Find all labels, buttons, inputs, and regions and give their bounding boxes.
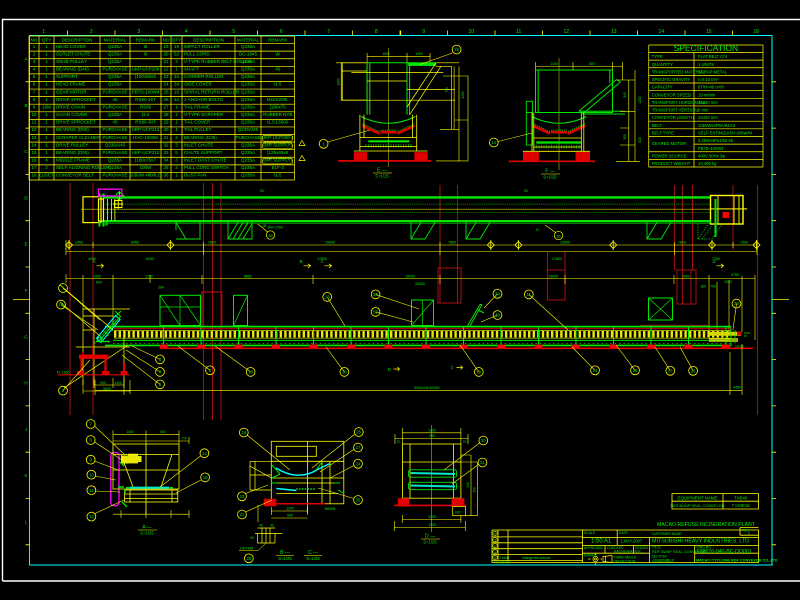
svg-text:750: 750 [445, 87, 449, 93]
svg-text:3: 3 [137, 29, 140, 35]
svg-text:5000x18=90000: 5000x18=90000 [414, 386, 439, 390]
svg-text:22: 22 [163, 67, 169, 72]
svg-text:PRODUCT WEIGHT: PRODUCT WEIGHT [652, 161, 691, 166]
svg-text:SCRAPER CLEANER: SCRAPER CLEANER [56, 135, 101, 140]
svg-text:0 mm: 0 mm [698, 108, 709, 113]
svg-text:MB008: MB008 [325, 507, 336, 511]
svg-text:1: 1 [42, 29, 45, 35]
svg-text:1450: 1450 [75, 241, 83, 245]
svg-text:4450: 4450 [733, 385, 741, 389]
svg-text:26: 26 [163, 97, 169, 102]
svg-text:TAIL PULLEY: TAIL PULLEY [184, 127, 212, 132]
svg-text:17: 17 [31, 165, 37, 170]
svg-text:HVC-1000M: HVC-1000M [133, 135, 158, 140]
svg-text:100W: 100W [140, 165, 153, 170]
svg-text:SCRAP METAL: SCRAP METAL [698, 69, 728, 74]
svg-text:5: 5 [232, 29, 235, 35]
svg-text:PURCHASE: PURCHASE [235, 135, 260, 140]
svg-text:18: 18 [476, 370, 481, 375]
svg-text:F: F [25, 288, 28, 293]
svg-text:UKP-UCP210: UKP-UCP210 [132, 127, 160, 132]
svg-text:BW-1050: BW-1050 [268, 226, 283, 230]
svg-text:PURCHASE: PURCHASE [102, 135, 127, 140]
svg-text:24: 24 [356, 461, 361, 466]
svg-text:700: 700 [710, 284, 716, 288]
svg-text:36: 36 [268, 233, 273, 238]
svg-text:23: 23 [163, 74, 169, 79]
svg-text:DRIVE CHAIN: DRIVE CHAIN [56, 104, 85, 109]
svg-text:25: 25 [163, 89, 169, 94]
svg-text:8450: 8450 [131, 241, 139, 245]
svg-text:1400: 1400 [126, 430, 134, 434]
svg-text:14: 14 [658, 29, 664, 35]
svg-text:13: 13 [31, 135, 37, 140]
svg-text:DRIVE SPROCKET: DRIVE SPROCKET [56, 97, 96, 102]
svg-text:10: 10 [468, 29, 474, 35]
svg-text:10M: 10M [42, 104, 51, 109]
svg-text:10: 10 [248, 370, 253, 375]
svg-text:1200: 1200 [286, 507, 294, 511]
svg-text:19: 19 [203, 475, 208, 480]
svg-text:7800: 7800 [448, 241, 456, 245]
svg-text:284: 284 [158, 286, 164, 290]
svg-text:OUTLET CHUTE: OUTLET CHUTE [56, 51, 90, 56]
svg-text:RES BUNP SEAL CONVEYOR: RES BUNP SEAL CONVEYOR [670, 503, 724, 508]
svg-text:PULL CORD: PULL CORD [184, 51, 210, 56]
svg-text:QUANTITY: QUANTITY [652, 62, 673, 67]
svg-text:13: 13 [325, 295, 330, 300]
svg-text:CONVEYOR SPEED: CONVEYOR SPEED [652, 92, 691, 97]
svg-text:1400: 1400 [415, 52, 423, 56]
svg-text:TAB40: TAB40 [734, 495, 748, 500]
svg-text:Q235A: Q235A [241, 142, 255, 147]
svg-text:3200: 3200 [337, 78, 341, 85]
svg-text:Q235A: Q235A [241, 104, 255, 109]
svg-text:10: 10 [31, 112, 37, 117]
svg-text:13: 13 [59, 302, 64, 307]
svg-text:ELF-3: ELF-3 [272, 165, 285, 170]
svg-text:Q235A/45: Q235A/45 [105, 142, 126, 147]
svg-text:7 HOE16: 7 HOE16 [732, 503, 751, 508]
svg-text:Q235A: Q235A [241, 150, 255, 155]
svg-text:90: 90 [250, 536, 254, 540]
svg-text:PURCHASE: PURCHASE [102, 104, 127, 109]
svg-text:27: 27 [668, 368, 673, 373]
svg-text:t1.5: t1.5 [274, 173, 282, 178]
svg-text:MATERIAL: MATERIAL [104, 37, 127, 42]
svg-text:BEARING (D50): BEARING (D50) [56, 127, 89, 132]
svg-text:TAIL FRAME: TAIL FRAME [184, 104, 210, 109]
svg-text:S=1/15: S=1/15 [375, 174, 389, 179]
svg-text:Q235A: Q235A [108, 165, 122, 170]
svg-text:5000: 5000 [682, 274, 690, 278]
svg-text:[180x75x7: [180x75x7 [135, 158, 156, 163]
svg-text:BEARING (D50): BEARING (D50) [56, 150, 89, 155]
svg-text:150: 150 [473, 487, 477, 493]
svg-text:7800: 7800 [208, 241, 216, 245]
svg-text:11: 11 [516, 29, 521, 35]
svg-text:K: K [24, 473, 27, 478]
svg-text:SELF-ALIGNING ROLLER: SELF-ALIGNING ROLLER [56, 165, 110, 170]
svg-text:PURCHASE: PURCHASE [102, 67, 127, 72]
svg-text:16: 16 [241, 430, 246, 435]
svg-text:Q235A: Q235A [241, 74, 255, 79]
svg-text:Q235A: Q235A [241, 67, 255, 72]
svg-text:BELT: BELT [652, 123, 663, 128]
svg-text:PURCHASE: PURCHASE [102, 173, 127, 178]
svg-text:(1)SET: (1)SET [39, 173, 54, 178]
svg-text:1 UNITS: 1 UNITS [698, 62, 714, 67]
svg-text:020: 020 [455, 510, 461, 514]
svg-text:45: 45 [112, 120, 118, 125]
svg-text:19: 19 [174, 44, 180, 49]
svg-text:35: 35 [163, 165, 169, 170]
svg-text:UKP-UCP210: UKP-UCP210 [132, 150, 160, 155]
svg-text:15000: 15000 [325, 241, 335, 245]
svg-text:33: 33 [495, 313, 500, 318]
svg-text:B: B [24, 103, 27, 108]
svg-text:31: 31 [480, 460, 485, 465]
svg-text:11: 11 [32, 120, 37, 125]
svg-text:Q235A: Q235A [108, 82, 122, 87]
svg-text:S=1/25: S=1/25 [278, 556, 292, 561]
svg-text:25: 25 [454, 47, 459, 52]
svg-text:J-ANCHOR BOLTS: J-ANCHOR BOLTS [184, 97, 223, 102]
svg-text:20: 20 [163, 51, 169, 56]
svg-text:GEARED MOTOR: GEARED MOTOR [652, 141, 686, 146]
svg-text:940: 940 [100, 381, 106, 385]
svg-text:t5: t5 [144, 44, 148, 49]
svg-text:13: 13 [89, 514, 94, 519]
svg-text:H: H [24, 381, 27, 386]
svg-text:BEARING (D35): BEARING (D35) [184, 135, 217, 140]
svg-text:13: 13 [611, 29, 617, 35]
svg-text:1400: 1400 [428, 523, 436, 527]
svg-text:Q235A: Q235A [108, 112, 122, 117]
svg-text:CAPACITY: CAPACITY [652, 85, 673, 90]
svg-text:t1.5 L5000: t1.5 L5000 [267, 120, 289, 125]
svg-text:27: 27 [163, 104, 169, 109]
svg-text:34: 34 [174, 74, 180, 79]
svg-text:+: + [553, 561, 555, 565]
svg-text:S=1/25: S=1/25 [423, 540, 437, 545]
svg-text:r=0.15 t/m³: r=0.15 t/m³ [698, 77, 719, 82]
svg-text:SUPPORT: SUPPORT [56, 74, 78, 79]
svg-text:[100x50x5: [100x50x5 [135, 74, 156, 79]
svg-text:35: 35 [356, 498, 361, 503]
svg-text:change the colours: change the colours [522, 556, 551, 560]
svg-text:15: 15 [31, 150, 37, 155]
svg-text:SPECIFICATION: SPECIFICATION [674, 43, 739, 53]
svg-text:34: 34 [163, 158, 169, 163]
svg-text:45: 45 [275, 67, 281, 72]
svg-text:CARRIER ROLLER: CARRIER ROLLER [184, 74, 224, 79]
svg-text:2.2kWx4Px1/62.55: 2.2kWx4Px1/62.55 [698, 138, 734, 143]
svg-text:RS80-15T: RS80-15T [135, 97, 156, 102]
svg-text:PURCHASE: PURCHASE [102, 127, 127, 132]
svg-text:A: A [24, 56, 27, 61]
svg-text:DUST PAN: DUST PAN [184, 173, 206, 178]
svg-text:REMARK: REMARK [136, 37, 155, 42]
svg-text:29: 29 [163, 120, 169, 125]
svg-text:34050: 34050 [415, 282, 425, 286]
svg-text:11: 11 [527, 292, 532, 297]
svg-text:4: 4 [185, 29, 188, 35]
svg-text:6: 6 [280, 29, 283, 35]
svg-text:INLET CHUTE: INLET CHUTE [184, 142, 213, 147]
svg-text:REV.DATE: REV.DATE [494, 560, 511, 564]
svg-text:QTY: QTY [42, 37, 51, 42]
svg-text:1050: 1050 [428, 428, 436, 432]
svg-text:36: 36 [163, 173, 169, 178]
svg-text:Q235A: Q235A [241, 173, 255, 178]
svg-text:PURCHASE: PURCHASE [102, 150, 127, 155]
svg-text:IMPACT ROLLER: IMPACT ROLLER [184, 44, 221, 49]
svg-text:30: 30 [481, 438, 486, 443]
svg-text:29: 29 [734, 301, 739, 306]
svg-text:600: 600 [160, 430, 166, 434]
svg-text:34: 34 [495, 291, 500, 296]
svg-text:EQUIPMENT NAME: EQUIPMENT NAME [678, 495, 718, 500]
svg-text:1450: 1450 [93, 274, 101, 278]
svg-text:31: 31 [163, 135, 169, 140]
svg-text:16: 16 [31, 158, 37, 163]
svg-text:J: J [25, 427, 27, 432]
svg-text:QTY: QTY [172, 37, 181, 42]
svg-text:F98626-040-BC-DO001: F98626-040-BC-DO001 [697, 549, 752, 555]
svg-text:NO: NO [31, 37, 38, 42]
svg-text:1B: 1B [262, 224, 267, 228]
svg-text:SPIRAL RETURN ROLLER: SPIRAL RETURN ROLLER [184, 89, 240, 94]
svg-text:1050: 1050 [382, 52, 390, 56]
svg-text:7800: 7800 [678, 241, 686, 245]
svg-text:5V: 5V [260, 189, 265, 193]
svg-text:PULL CORD SWITCH: PULL CORD SWITCH [184, 165, 229, 170]
svg-text:7: 7 [327, 29, 330, 35]
svg-text:DRIVE SPROCKET: DRIVE SPROCKET [56, 120, 96, 125]
svg-text:SIDE COVER: SIDE COVER [184, 82, 213, 87]
svg-text:BELT TYPE: BELT TYPE [652, 130, 674, 135]
svg-text:t3.2: t3.2 [142, 112, 150, 117]
svg-text:9: 9 [422, 29, 425, 35]
svg-text:14: 14 [202, 451, 207, 456]
svg-text:PBTD-100W4: PBTD-100W4 [132, 89, 160, 94]
svg-text:Q235A: Q235A [241, 112, 255, 117]
svg-text:Q235A: Q235A [241, 97, 255, 102]
svg-text:34: 34 [174, 97, 180, 102]
svg-text:Q235A: Q235A [241, 89, 255, 94]
svg-text:770: 770 [181, 437, 187, 441]
svg-text:S=1/25: S=1/25 [543, 175, 557, 180]
svg-text:PROJECTION: PROJECTION [614, 559, 636, 563]
svg-text:1050Wx2P9A/923.0: 1050Wx2P9A/923.0 [698, 123, 736, 128]
svg-text:540: 540 [287, 514, 293, 518]
svg-text:12: 12 [31, 127, 37, 132]
svg-text:180: 180 [700, 284, 706, 288]
svg-text:11: 11 [89, 488, 94, 493]
svg-text:TRANSPORT VERTICAL: TRANSPORT VERTICAL [652, 108, 700, 113]
svg-text:1050: 1050 [724, 280, 732, 284]
svg-text:MACAO CYCLONE RDF CONVEYOR CO.: MACAO CYCLONE RDF CONVEYOR CO.,LTD [696, 559, 778, 563]
svg-text:N: N [536, 228, 539, 232]
svg-text:19: 19 [163, 44, 169, 49]
svg-text:S=1/25: S=1/25 [140, 531, 154, 536]
svg-text:1050W 4800LG: 1050W 4800LG [130, 173, 162, 178]
svg-text:SHAFT: SHAFT [184, 67, 199, 72]
svg-text:14: 14 [593, 368, 598, 373]
svg-text:30: 30 [163, 127, 169, 132]
svg-text:17800: 17800 [552, 257, 562, 261]
svg-text:RUBBER NYB: RUBBER NYB [263, 112, 292, 117]
svg-text:M16X200L: M16X200L [267, 97, 289, 102]
svg-text:DESCRIPTION: DESCRIPTION [193, 37, 224, 42]
svg-text:70: 70 [397, 440, 401, 444]
svg-text:t6: t6 [144, 51, 148, 56]
svg-text:800: 800 [96, 281, 102, 285]
svg-text:APPROVED: APPROVED [584, 546, 603, 550]
svg-text:CONVEYOR LENGTH: CONVEYOR LENGTH [652, 115, 694, 120]
svg-text:S=1/25: S=1/25 [306, 556, 320, 561]
svg-text:16: 16 [753, 29, 759, 35]
svg-text:SELF EXTINGUISH 400W/M: SELF EXTINGUISH 400W/M [698, 130, 752, 135]
svg-text:PB7D-100W4: PB7D-100W4 [698, 146, 724, 151]
svg-text:400V 50Hz 3φ: 400V 50Hz 3φ [698, 153, 725, 158]
svg-text:26: 26 [691, 368, 696, 373]
svg-text:350: 350 [623, 134, 627, 140]
svg-text:DRIVE PULLEY: DRIVE PULLEY [56, 142, 88, 147]
svg-text:SPECIFIC GRAVITY: SPECIFIC GRAVITY [652, 77, 691, 82]
svg-text:8882: 8882 [244, 274, 252, 278]
svg-text:10: 10 [89, 472, 94, 477]
svg-text:Q235A: Q235A [241, 165, 255, 170]
svg-text:28: 28 [246, 556, 251, 561]
svg-text:23: 23 [240, 494, 245, 499]
svg-text:15: 15 [706, 29, 712, 35]
svg-text:FLAT BELT C/V: FLAT BELT C/V [698, 54, 727, 59]
svg-text:5V: 5V [524, 189, 529, 193]
svg-text:Q235A: Q235A [108, 158, 122, 163]
svg-text:DATE: DATE [619, 531, 629, 535]
svg-text:32: 32 [163, 142, 169, 147]
svg-text:18: 18 [31, 173, 37, 178]
svg-text:REMARK: REMARK [268, 37, 287, 42]
svg-text:15000: 15000 [548, 274, 558, 278]
svg-text:Q235A: Q235A [241, 44, 255, 49]
svg-text:27: 27 [356, 445, 361, 450]
svg-text:7350: 7350 [740, 241, 748, 245]
svg-text:RS80-30T: RS80-30T [135, 120, 156, 125]
svg-text:HEAD FRAME: HEAD FRAME [56, 82, 86, 87]
svg-text:Q235A/45: Q235A/45 [238, 127, 259, 132]
svg-text:NO: NO [163, 37, 170, 42]
svg-text:930: 930 [429, 434, 435, 438]
svg-text:ASSEMBLY: ASSEMBLY [652, 558, 674, 563]
svg-text:53: 53 [373, 310, 378, 315]
svg-text:RS80: RS80 [140, 104, 152, 109]
svg-text:POWER SOURCE: POWER SOURCE [652, 153, 687, 158]
svg-text:40: 40 [270, 524, 274, 528]
svg-text:MATERIAL: MATERIAL [237, 37, 260, 42]
svg-text:620: 620 [638, 137, 642, 143]
svg-text:45: 45 [112, 97, 118, 102]
svg-text:36: 36 [556, 233, 561, 238]
svg-text:Q235A: Q235A [241, 158, 255, 163]
svg-text:E: E [388, 367, 391, 372]
svg-text:4780: 4780 [731, 273, 739, 277]
svg-text:TAIL COVER: TAIL COVER [184, 120, 211, 125]
svg-text:1050: 1050 [428, 515, 436, 519]
svg-text:t1.5: t1.5 [274, 82, 282, 87]
svg-text:340: 340 [623, 92, 627, 98]
svg-text:DESCRIPTION: DESCRIPTION [62, 37, 93, 42]
svg-text:1.MAY.2007: 1.MAY.2007 [620, 539, 643, 544]
svg-text:25: 25 [356, 430, 361, 435]
svg-text:Q235A: Q235A [108, 44, 122, 49]
svg-text:800: 800 [589, 62, 595, 66]
svg-text:B: B [300, 259, 303, 264]
svg-text:32400 mm: 32400 mm [698, 100, 718, 105]
svg-text:E: E [24, 242, 27, 247]
svg-text:52: 52 [174, 51, 180, 56]
svg-text:16: 16 [174, 89, 180, 94]
svg-text:10 m/min: 10 m/min [698, 92, 716, 97]
svg-text:HEAD COVER: HEAD COVER [56, 44, 87, 49]
svg-text:SNUB PULLEY: SNUB PULLEY [56, 59, 87, 64]
svg-text:Q235A: Q235A [108, 74, 122, 79]
svg-text:BEARING (D40): BEARING (D40) [56, 67, 89, 72]
svg-text:16: 16 [342, 370, 347, 375]
svg-text:CHAIN COVER: CHAIN COVER [56, 112, 88, 117]
svg-text:1200: 1200 [638, 96, 642, 103]
svg-text:[125x65x6: [125x65x6 [267, 150, 288, 155]
svg-text:MITSUBISHI HEAVY INDUSTRIES,: MITSUBISHI HEAVY INDUSTRIES, LTD. [652, 539, 751, 545]
svg-text:Q235A: Q235A [241, 82, 255, 87]
svg-text:40: 40 [259, 524, 263, 528]
svg-text:15000: 15000 [405, 274, 415, 278]
svg-text:GEAR MOTOR: GEAR MOTOR [56, 89, 87, 94]
svg-text:14: 14 [491, 140, 496, 145]
svg-text:G: G [24, 334, 28, 339]
svg-text:FL-1500: FL-1500 [57, 370, 69, 374]
svg-text:1782: 1782 [145, 274, 153, 278]
svg-text:38: 38 [633, 368, 638, 373]
svg-text:6T/H=40 m³/H: 6T/H=40 m³/H [698, 85, 724, 90]
svg-text:1:50 A1: 1:50 A1 [591, 539, 612, 545]
svg-text:UKP-UCP208: UKP-UCP208 [132, 67, 160, 72]
svg-text:TYPE: TYPE [652, 54, 663, 59]
svg-text:Q235A: Q235A [108, 59, 122, 64]
svg-text:[180x75: [180x75 [270, 104, 287, 109]
svg-text:CUSTOMER NAME: CUSTOMER NAME [652, 532, 683, 536]
svg-text:F: F [451, 366, 454, 371]
svg-text:MIDDLE FRAME: MIDDLE FRAME [56, 158, 90, 163]
svg-text:8: 8 [375, 29, 378, 35]
svg-text:34: 34 [174, 82, 180, 87]
svg-text:28: 28 [163, 112, 169, 117]
svg-text:Q235A: Q235A [108, 51, 122, 56]
svg-text:2: 2 [90, 29, 93, 35]
svg-text:21: 21 [163, 59, 169, 64]
svg-text:DC-1845: DC-1845 [239, 51, 258, 56]
svg-text:V-TYPE SCRAPER: V-TYPE SCRAPER [184, 112, 224, 117]
svg-text:18.63: 18.63 [735, 344, 744, 348]
svg-text:24: 24 [163, 82, 169, 87]
svg-text:PURCHASE: PURCHASE [102, 89, 127, 94]
svg-text:CONVEYOR BELT: CONVEYOR BELT [56, 173, 94, 178]
svg-text:1200: 1200 [461, 91, 465, 98]
svg-text:1400: 1400 [114, 381, 122, 385]
svg-text:32400 mm: 32400 mm [698, 115, 718, 120]
